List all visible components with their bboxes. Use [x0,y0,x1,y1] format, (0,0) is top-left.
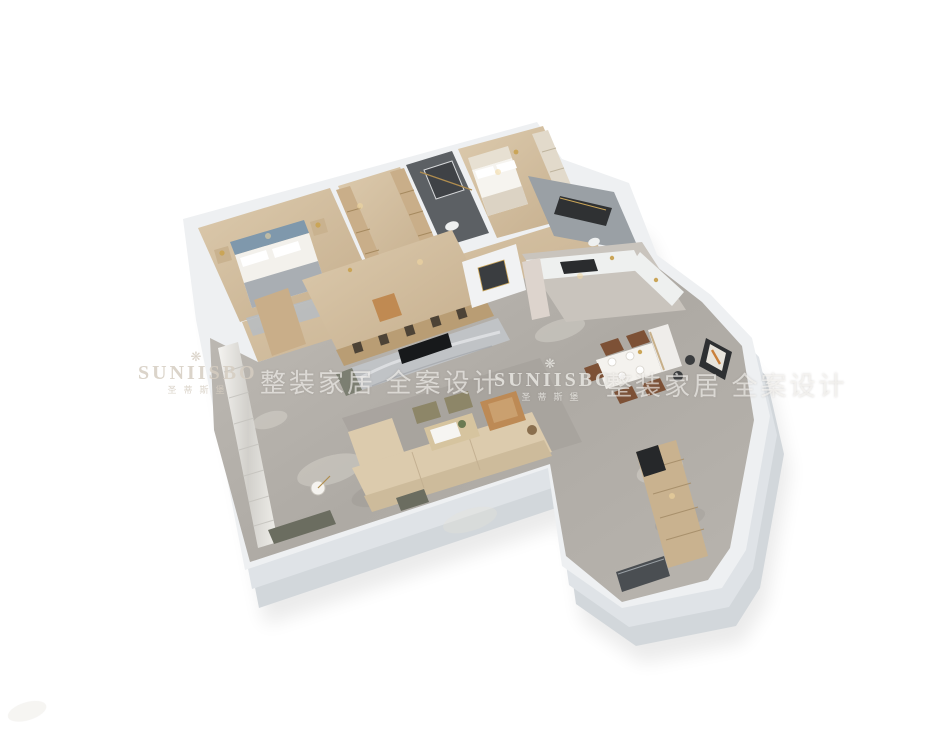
screenshot-canvas: ❋ SUNIISBO 圣蒂斯堡 整装家居 全案设计 ❋ SUNIISBO 圣蒂斯… [0,0,950,733]
floorplan-3d-render [0,0,950,733]
room-kitchen [522,242,686,322]
